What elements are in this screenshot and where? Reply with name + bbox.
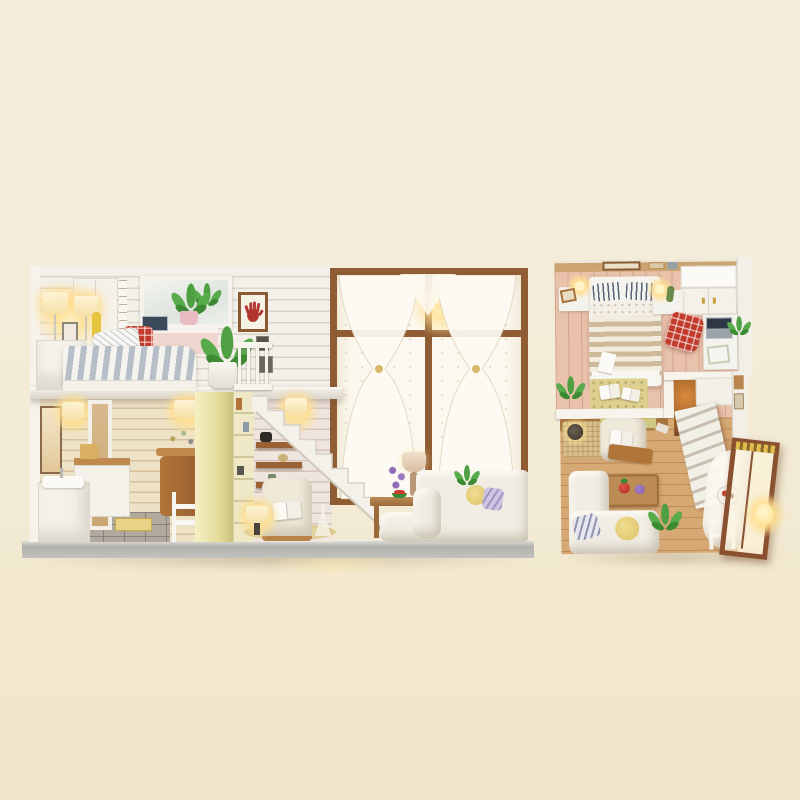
loft-railing-bottom [234,384,272,390]
tv-wall-frame-small-2 [667,262,677,269]
dollhouse-top-view [554,257,797,564]
wash-basin [42,476,84,488]
product-photo [0,0,800,800]
tv-pillow-left [592,282,623,302]
basin-faucet [60,468,63,478]
shelf-item-jar [237,466,244,475]
tv-desk-plant [725,315,753,343]
tv-wall-art-2 [734,393,744,409]
living-table-lamp-shade [402,452,426,472]
watermelon-flesh [394,490,405,494]
loft-table-lamp-pole [85,316,87,340]
tv-wardrobe-handle-1 [702,298,705,304]
tv-magazine [706,344,730,364]
tv-door-lantern [755,503,773,525]
loft-railing-post-4 [265,348,268,388]
laundry-counter-top [74,458,130,465]
loft-floor-lamp-shade [42,292,68,314]
tv-lamp-right [655,284,665,294]
loft-railing-post-3 [256,348,259,388]
dried-flowers-and-figurines [162,422,198,450]
yellow-pillar [195,392,233,542]
tv-wall-frame-large [602,261,640,270]
sofa-armrest [413,488,441,538]
tv-ladder-rail-1 [709,510,713,550]
handprint-icon [242,297,264,325]
tv-yellow-pillow [615,516,639,540]
tv-plant-west [554,375,588,409]
tv-nook-ball-lamp [567,424,583,440]
curtain-valance [382,274,474,318]
shelf-item-book-2 [243,422,249,432]
sill-plant-pot [180,311,198,325]
nook-lamp-base [254,523,260,535]
coffee-table-leg-left [374,506,379,538]
tv-stair-landing [696,377,736,405]
shelf-item-book-1 [236,398,242,410]
step-stool-leg-left [172,492,176,542]
tv-plant-south [645,502,685,542]
tv-wardrobe-handle-2 [713,298,716,304]
loft-floor-lamp-pole [54,314,56,342]
tv-purple-flower [635,484,645,494]
tv-strawberry [619,482,630,493]
tv-wardrobe-top [680,265,736,288]
loft-railing-post-2 [247,348,250,388]
wash-basin-cabinet [38,482,90,542]
tv-wall-art-1 [734,375,744,389]
bathroom-wall-lamp-1 [62,402,84,420]
yellow-door-mat [115,518,152,531]
tv-leaning-frame [560,288,577,304]
tv-strawberry-leaf [621,479,628,484]
loft-railing-post-1 [238,348,241,388]
laundry-basket [80,444,98,459]
tv-open-book-1 [599,383,621,400]
dollhouse-front-view [30,266,528,542]
nook-floor-lamp [246,506,268,523]
tv-lamp-left [575,281,585,291]
display-base-board [22,540,534,558]
lilac-striped-pillow [482,487,505,512]
loft-plant-pot [209,362,237,388]
tv-wall-frame-small-1 [648,262,664,269]
